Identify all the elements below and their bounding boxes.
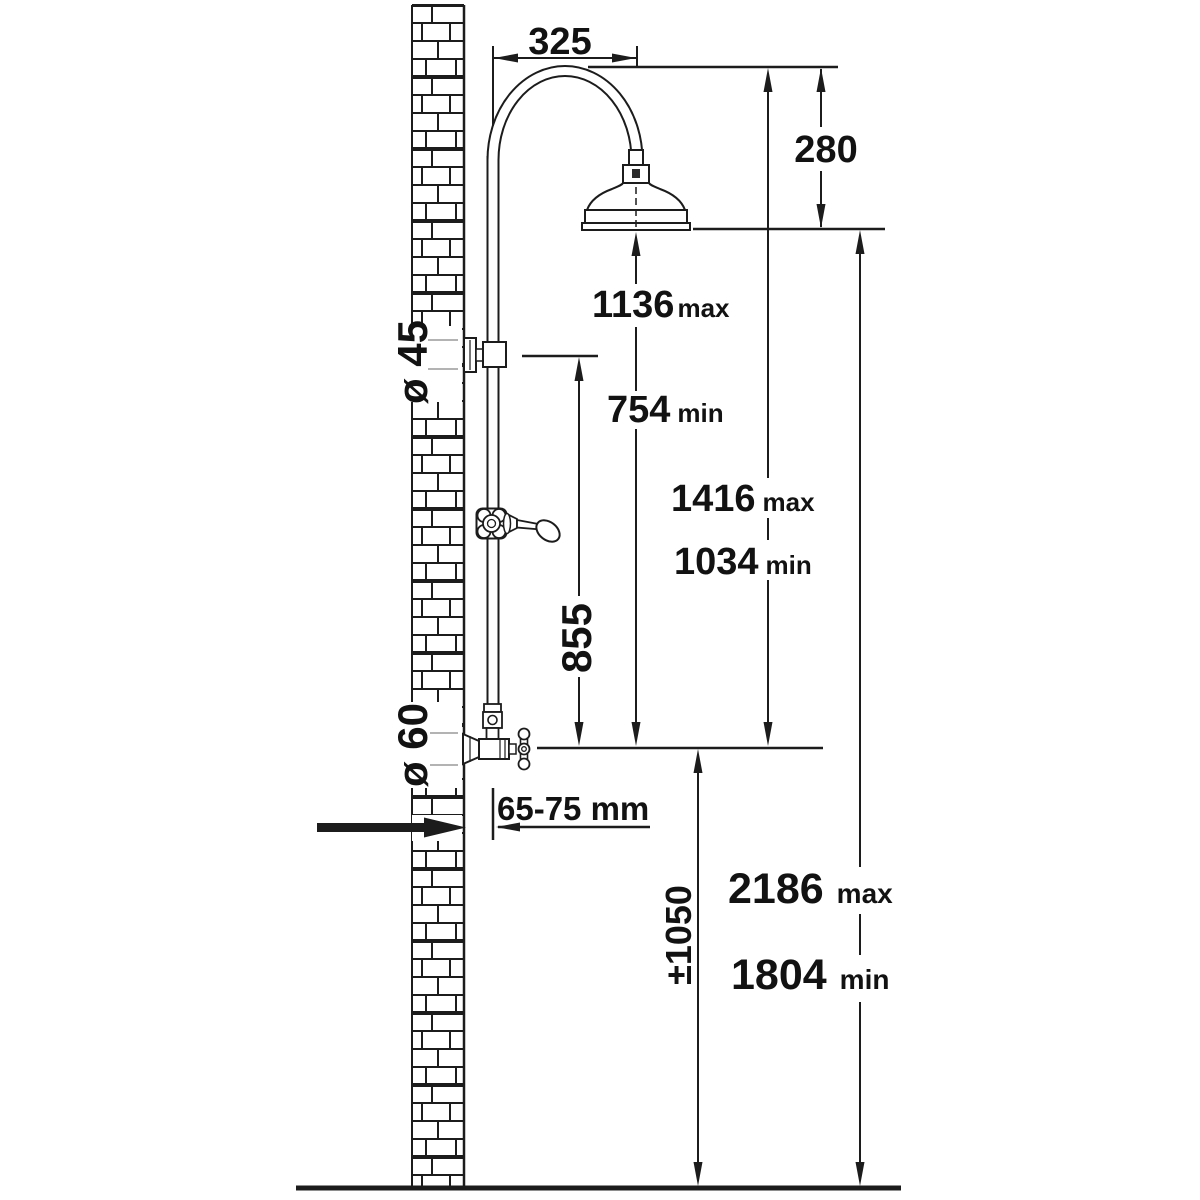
- arrowhead-down: [856, 1162, 865, 1186]
- dim-label-head-to-diverter-max: 1136 max: [592, 286, 730, 324]
- dim-label-head-to-diverter-min: 754 min: [607, 391, 724, 429]
- handle-top-ball: [519, 729, 530, 740]
- head-nut-slot: [632, 169, 640, 178]
- dim-label-head-drop: 280: [726, 131, 926, 169]
- arrowhead-down: [694, 1162, 703, 1186]
- dim-suffix: max: [837, 880, 893, 908]
- bracket-stem: [476, 349, 483, 361]
- bracket-slider-block: [483, 342, 506, 367]
- dim-suffix: min: [677, 400, 723, 426]
- arrowhead-up: [575, 357, 584, 381]
- dim-value: 1136: [592, 286, 674, 324]
- valve-wall-cone: [463, 734, 479, 764]
- valve-collar: [484, 704, 501, 712]
- dim-label-inlet-height: ±1050: [659, 855, 699, 1015]
- dim-label-top-to-diverter-max: 1416 max: [671, 480, 815, 518]
- dim-value: 1804: [731, 954, 827, 997]
- technical-diagram: 325 280 1136 max 754 min 1416 max 1034 m…: [0, 0, 1200, 1200]
- dim-suffix: min: [840, 966, 890, 994]
- valve-union-hole: [488, 716, 497, 725]
- dim-label-overall-max: 2186 max: [728, 868, 893, 911]
- dim-value: 1416: [671, 480, 756, 518]
- dim-label-valve-diameter: ø 60: [390, 685, 436, 805]
- valve-neck: [487, 728, 499, 739]
- dim-label-wall-depth: 65-75 mm: [497, 792, 649, 825]
- shower-head: [582, 150, 690, 230]
- arrowhead-up: [632, 232, 641, 256]
- dim-label-bracket-to-diverter: 855: [555, 568, 599, 708]
- lever-knob: [532, 516, 564, 546]
- dim-value: 754: [607, 391, 670, 429]
- diagram-drawing: [0, 0, 1200, 1200]
- upper-wall-bracket: [464, 338, 506, 372]
- handle-bottom-ball: [519, 759, 530, 770]
- dim-suffix: max: [677, 295, 729, 321]
- dim-label-bracket-diameter: ø 45: [390, 302, 436, 422]
- arrowhead-down: [817, 204, 826, 228]
- stop-valve: [463, 704, 530, 770]
- head-collar: [629, 150, 643, 165]
- brick-wall: [392, 5, 464, 1186]
- dim-suffix: max: [763, 489, 815, 515]
- dim-value: 2186: [728, 868, 824, 911]
- dim-suffix: min: [766, 552, 812, 578]
- handle-center-ball: [519, 744, 530, 755]
- brick-wall-body: [412, 5, 464, 1186]
- lever-cone-face: [504, 514, 511, 534]
- riser-pipe: [488, 156, 499, 710]
- arrowhead-up: [856, 230, 865, 254]
- dim-overall-height: [856, 230, 865, 1186]
- arrowhead-up: [694, 749, 703, 773]
- arrowhead-down: [632, 722, 641, 746]
- arrowhead-down: [764, 722, 773, 746]
- dim-label-overall-min: 1804 min: [731, 954, 889, 997]
- dim-label-arm-projection: 325: [460, 23, 660, 61]
- diverter-hub: [483, 515, 500, 532]
- arrowhead-down: [575, 722, 584, 746]
- arrowhead-up: [764, 68, 773, 92]
- valve-stem: [509, 744, 516, 754]
- dim-value: 1034: [674, 543, 759, 581]
- dim-label-top-to-diverter-min: 1034 min: [674, 543, 812, 581]
- riser-pipe-fill: [488, 156, 498, 710]
- dim-top-to-diverter: [764, 68, 773, 746]
- gooseneck-arm: [488, 66, 643, 160]
- arrowhead-up: [817, 68, 826, 92]
